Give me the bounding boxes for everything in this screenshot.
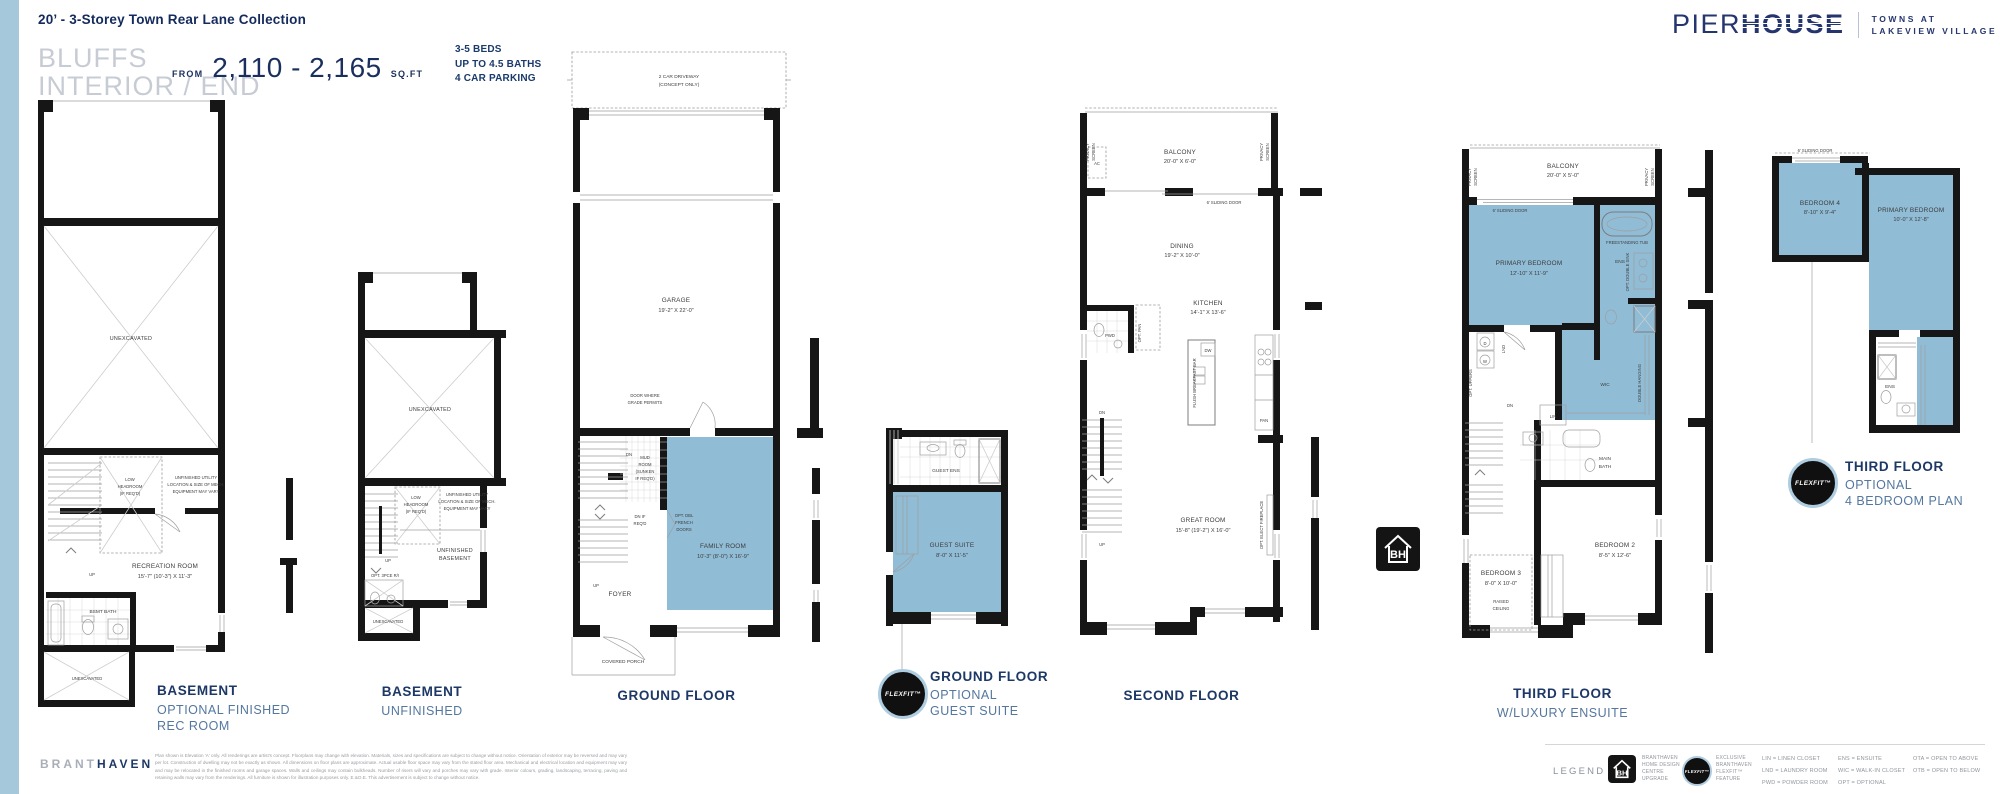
legend-line: BRANTHAVEN (1642, 755, 1680, 762)
label-lnd: LND (1501, 345, 1506, 353)
door-swing (1504, 332, 1525, 350)
label-privacy-screen: PRIVACY (1259, 143, 1264, 161)
left-accent-bar (0, 0, 19, 794)
caption-basement-optional: BASEMENT OPTIONAL FINISHED REC ROOM (157, 683, 290, 734)
bh-upgrade-badge: BH (1376, 527, 1420, 571)
label-utility: UNFINISHED UTILITY (175, 475, 218, 480)
label-french-doors: FRENCH (675, 520, 692, 525)
label-privacy-screen: SCREEN (1650, 168, 1655, 185)
caption-line: OPTIONAL FINISHED (157, 702, 290, 718)
stairs (578, 442, 628, 562)
sqft-block: FROM 2,110 - 2,165 SQ.FT (172, 52, 423, 84)
label-primary-bedroom-dims: 12'-10" X 11'-9" (1510, 271, 1548, 277)
label-dw: DW (1205, 348, 1212, 353)
legend-line: HOME DESIGN (1642, 762, 1680, 769)
caption-basement-unfinished: BASEMENT UNFINISHED (352, 684, 492, 719)
logo-stripe (1741, 18, 1845, 19)
label-unexcavated-lower: UNEXCAVATED (72, 676, 102, 681)
label-unexcavated-upper: UNEXCAVATED (110, 336, 153, 342)
label-balcony-dims: 20'-0" X 5'-0" (1547, 173, 1579, 179)
party-wall-fragments (1688, 150, 1713, 653)
label-sliding-door: 6' SLIDING DOOR (1493, 208, 1528, 213)
floorplan-ground: 2 CAR DRIVEWAY (CONCEPT ONLY) GARAGE 19'… (565, 40, 845, 685)
label-balcony: BALCONY (1547, 163, 1579, 170)
label-ens: ENS (1615, 259, 1625, 265)
pierhouse-logo: PIER HOUSE TOWNS AT LAKEVIEW VILLAGE (1672, 9, 1997, 40)
label-bedroom2: BEDROOM 2 (1595, 542, 1635, 549)
caption-third: THIRD FLOOR W/LUXURY ENSUITE (1460, 686, 1665, 721)
label-bedroom4: BEDROOM 4 (1800, 200, 1840, 207)
caption-line: 4 BEDROOM PLAN (1845, 493, 1963, 509)
label-up: UP (1099, 542, 1105, 547)
label-ens: ENS (1885, 384, 1895, 390)
branthaven-logo: BRANTHAVEN (40, 757, 153, 771)
label-pan: PAN (1260, 418, 1268, 423)
legend-line: CENTRE (1642, 769, 1680, 776)
label-balcony: BALCONY (1164, 149, 1196, 156)
legend-bh-icon: BH (1608, 755, 1636, 783)
label-dining: DINING (1170, 243, 1194, 250)
label-primary-bedroom-dims: 10'-0" X 12'-8" (1893, 217, 1928, 223)
label-garage-dims: 19'-2" X 22'-0" (658, 308, 693, 314)
label-driveway: 2 CAR DRIVEWAY (659, 74, 700, 80)
branthaven-logo-part2: HAVEN (97, 757, 153, 771)
range-counter (1255, 335, 1273, 430)
label-opt-pan: OPT. PAN (1137, 324, 1142, 343)
caption-line: THIRD FLOOR (1460, 686, 1665, 702)
label-bedroom2-dims: 8'-5" X 12'-6" (1599, 553, 1631, 559)
label-rec-room-dims: 15'-7" (10'-3") X 11'-3" (138, 574, 192, 580)
label-main-bath: MAIN (1599, 456, 1612, 462)
legend-line: BRANTHAVEN (1716, 762, 1752, 769)
legend-line: FEATURE (1716, 776, 1752, 783)
label-raised-ceiling: CEILING (1493, 606, 1510, 611)
wic-fill (1917, 337, 1953, 432)
label-up: UP (385, 558, 391, 563)
label-door-grade: DOOR WHERE (630, 393, 660, 398)
label-unfinished: UNFINISHED (437, 548, 473, 554)
legend-abbr: WIC = WALK-IN CLOSET (1838, 765, 1905, 777)
caption-ground: GROUND FLOOR (573, 688, 780, 704)
label-utility: UNFINISHED UTILITY (446, 492, 489, 497)
ensuite-fixtures (900, 437, 1001, 485)
label-bedroom3-dims: 8'-0" X 10'-0" (1485, 581, 1517, 587)
label-utility: LOCATION & SIZE OF MECH. (438, 499, 495, 504)
porch-lines (572, 637, 675, 675)
stairs (1465, 423, 1503, 513)
caption-line: GROUND FLOOR (573, 688, 780, 704)
logo-divider (1858, 12, 1859, 38)
label-breakfast-bar: FLUSH BREAKFAST BAR (1192, 358, 1197, 407)
floorplan-guest-suite: GUEST ENS GUEST SUITE 8'-0" X 11'-5" (876, 420, 1016, 675)
spec-baths: UP TO 4.5 BATHS (455, 58, 541, 73)
walls (1080, 113, 1283, 635)
label-garage: GARAGE (662, 297, 691, 304)
party-wall-fragments (1300, 188, 1322, 630)
label-low-headroom: LOW (411, 495, 421, 500)
label-privacy-screen: PRIVACY (1644, 168, 1649, 186)
label-foyer: FOYER (608, 591, 631, 598)
legend-abbr: OTA = OPEN TO ABOVE (1913, 753, 1980, 765)
label-double-hanging: DOUBLE HANGING (1637, 364, 1642, 402)
legend-abbr: OPT = OPTIONAL (1838, 777, 1905, 789)
label-wic: WIC (1600, 382, 1610, 388)
sqft-range: 2,110 - 2,165 (212, 52, 381, 84)
logo-stripe (1741, 23, 1845, 24)
legend-flexfit-text: EXCLUSIVE BRANTHAVEN FLEXFIT™ FEATURE (1716, 755, 1752, 783)
bathroom-fixtures (46, 598, 130, 645)
driveway-zone (567, 52, 791, 108)
label-washer: W (1483, 359, 1487, 364)
spec-parking: 4 CAR PARKING (455, 72, 541, 87)
label-basement: BASEMENT (439, 556, 471, 562)
party-wall-fragments (280, 478, 297, 613)
low-headroom-zone (100, 457, 162, 553)
walls (358, 272, 506, 641)
label-dn: DN (1099, 410, 1105, 415)
caption-line: BASEMENT (157, 683, 290, 699)
logo-wordmark: PIER HOUSE (1672, 9, 1845, 40)
label-utility: LOCATION & SIZE OF MECH. (167, 482, 224, 487)
label-opt-uppers: OPT. UPPERS (1468, 369, 1473, 397)
caption-third-4bed: THIRD FLOOR OPTIONAL 4 BEDROOM PLAN (1845, 459, 1963, 509)
spec-list: 3-5 BEDS UP TO 4.5 BATHS 4 CAR PARKING (455, 43, 541, 87)
label-family-room: FAMILY ROOM (700, 543, 746, 550)
caption-line: REC ROOM (157, 718, 290, 734)
label-privacy-screen: PRIVACY (1467, 168, 1472, 186)
label-low-headroom: HEADROOM (404, 502, 429, 507)
floorplan-second: PRIVACY SCREEN PRIVACY SCREEN AC BALCONY… (1070, 90, 1340, 640)
label-dn-if-reqd: REQ'D (634, 521, 647, 526)
label-guest-ens: GUEST ENS (932, 468, 960, 474)
label-bedroom3: BEDROOM 3 (1481, 570, 1521, 577)
label-mud-room: MUD (640, 455, 650, 460)
flexfit-badge: FLEXFIT™ (1788, 458, 1838, 508)
label-dn: DN (1507, 403, 1513, 408)
flexfit-badge-label: FLEXFIT™ (885, 691, 921, 698)
powder-room-fixtures (1087, 311, 1128, 353)
legend-abbr: ENS = ENSUITE (1838, 753, 1905, 765)
label-rough-in: OPT. 3PCE R/I (371, 573, 399, 578)
bedroom4-fill (1779, 163, 1862, 255)
label-dn: DN (626, 452, 632, 457)
bh-badge-label: BH (1390, 549, 1406, 561)
label-freestanding-tub: FREESTANDING TUB (1606, 240, 1648, 245)
disclaimer-text: Plan shown is Elevation 'A' only. All re… (155, 752, 627, 782)
floorplan-basement-unfinished: UNEXCAVATED LOW HEADROOM (IF REQ'D) UNFI… (275, 268, 560, 652)
legend-divider (1545, 744, 1985, 745)
tagline-line2: LAKEVIEW VILLAGE (1872, 25, 1998, 37)
label-lin: LIN (1550, 414, 1557, 419)
label-main-bath: BATH (1599, 464, 1612, 470)
label-french-doors: OPT. DBL (675, 513, 694, 518)
from-label: FROM (172, 69, 203, 79)
caption-line: OPTIONAL (930, 687, 1048, 703)
floorplan-third-4bed: 6' SLIDING DOOR BEDROOM 4 8'-10" X 9'-4"… (1765, 145, 1975, 445)
label-low-headroom: HEADROOM (118, 484, 143, 489)
label-kitchen-dims: 14'-1" X 13'-6" (1190, 310, 1225, 316)
branthaven-logo-part1: BRANT (40, 757, 97, 771)
label-family-room-dims: 10'-3" (8'-0") X 16'-9" (697, 554, 749, 560)
label-rec-room: RECREATION ROOM (132, 563, 198, 570)
logo-house: HOUSE (1741, 9, 1845, 40)
door-swing (155, 514, 180, 532)
legend-abbr: OTB = OPEN TO BELOW (1913, 765, 1980, 777)
flexfit-badge-label: FLEXFIT™ (1795, 480, 1831, 487)
bed3-closet (1541, 555, 1563, 617)
label-great-room-dims: 15'-8" (19'-2") X 16'-0" (1176, 528, 1231, 534)
legend-abbr-col3: OTA = OPEN TO ABOVE OTB = OPEN TO BELOW (1913, 753, 1980, 777)
legend-abbr-col2: ENS = ENSUITE WIC = WALK-IN CLOSET OPT =… (1838, 753, 1905, 789)
label-driveway: (CONCEPT ONLY) (659, 82, 700, 88)
label-pwd: PWD (1105, 333, 1115, 338)
label-privacy-screen: SCREEN (1091, 143, 1096, 160)
floorplan-basement-optional: UNEXCAVATED LOW HEADROOM (IF REQ'D) UNFI… (30, 95, 260, 710)
legend-abbr-col1: LIN = LINEN CLOSET LND = LAUNDRY ROOM PW… (1762, 753, 1828, 789)
primary-bedroom-fill (1869, 175, 1953, 330)
balcony-rail (1470, 145, 1660, 148)
caption-line: GROUND FLOOR (930, 669, 1048, 685)
caption-line: SECOND FLOOR (1078, 688, 1285, 704)
caption-line: UNFINISHED (352, 703, 492, 719)
label-great-room: GREAT ROOM (1180, 517, 1225, 524)
label-mud-room: ROOM (638, 462, 652, 467)
label-primary-bedroom: PRIMARY BEDROOM (1878, 207, 1945, 214)
legend-bh-text: BRANTHAVEN HOME DESIGN CENTRE UPGRADE (1642, 755, 1680, 783)
label-dryer: D (1483, 341, 1486, 346)
tagline-line1: TOWNS AT (1872, 13, 1998, 25)
label-up: UP (593, 583, 599, 588)
logo-house-text: HOUSE (1741, 9, 1845, 39)
logo-pier: PIER (1672, 9, 1741, 40)
label-unexcavated-lower: UNEXCAVATED (373, 619, 403, 624)
party-wall-fragments (797, 338, 823, 642)
label-low-headroom: (IF REQ'D) (120, 491, 141, 496)
label-sliding-door: 6' SLIDING DOOR (1207, 200, 1242, 205)
label-utility: EQUIPMENT MAY VARY (444, 506, 491, 511)
label-up: UP (89, 572, 95, 577)
floorplan-sheet: 20’ - 3-Storey Town Rear Lane Collection… (0, 0, 2000, 794)
legend-line: EXCLUSIVE (1716, 755, 1752, 762)
label-unexcavated-upper: UNEXCAVATED (409, 407, 452, 413)
label-sliding-door: 6' SLIDING DOOR (1798, 148, 1833, 153)
floorplan-third: PRIVACY SCREEN PRIVACY SCREEN BALCONY 20… (1455, 135, 1730, 690)
label-mud-room: (SUNKEN (636, 469, 655, 474)
label-bedroom4-dims: 8'-10" X 9'-4" (1804, 210, 1836, 216)
main-bath-fixtures (1520, 430, 1600, 480)
label-bsmt-bath: BSMT BATH (89, 609, 117, 615)
logo-stripe (1741, 27, 1845, 28)
caption-guest-suite: GROUND FLOOR OPTIONAL GUEST SUITE (930, 669, 1048, 719)
flexfit-badge-label: FLEXFIT™ (1685, 769, 1709, 774)
caption-second: SECOND FLOOR (1078, 688, 1285, 704)
label-balcony-dims: 20'-0" X 6'-0" (1164, 159, 1196, 165)
label-low-headroom: (IF REQ'D) (406, 509, 427, 514)
sqft-unit: SQ.FT (391, 69, 424, 79)
label-privacy-screen: PRIVACY (1085, 143, 1090, 161)
collection-title: 20’ - 3-Storey Town Rear Lane Collection (38, 12, 306, 27)
balcony-rail (1085, 108, 1278, 112)
legend-abbr: PWD = POWDER ROOM (1762, 777, 1828, 789)
label-covered-porch: COVERED PORCH (602, 659, 645, 665)
ensuite-fixtures (1878, 355, 1915, 416)
caption-line: BASEMENT (352, 684, 492, 700)
caption-line: GUEST SUITE (930, 703, 1048, 719)
bh-badge-label: BH (1616, 768, 1627, 777)
walls (38, 100, 225, 707)
label-guest-suite-dims: 8'-0" X 11'-5" (936, 553, 968, 559)
bh-house-icon: BH (1608, 755, 1636, 783)
label-french-doors: DOORS (676, 527, 692, 532)
guest-suite-fill (893, 492, 1001, 612)
caption-line: THIRD FLOOR (1845, 459, 1963, 475)
label-primary-bedroom: PRIMARY BEDROOM (1496, 260, 1563, 267)
logo-tagline: TOWNS AT LAKEVIEW VILLAGE (1872, 13, 1998, 37)
flexfit-badge: FLEXFIT™ (878, 669, 928, 719)
spec-beds: 3-5 BEDS (455, 43, 541, 58)
label-guest-suite: GUEST SUITE (930, 542, 975, 549)
bh-house-icon: BH (1376, 527, 1420, 571)
legend-title: LEGEND (1553, 766, 1605, 777)
legend-line: FLEXFIT™ (1716, 769, 1752, 776)
label-opt-double-sink: OPT. DOUBLE SINK (1625, 252, 1630, 291)
raised-ceiling-zone (1470, 555, 1532, 630)
label-utility: EQUIPMENT MAY VARY (173, 489, 220, 494)
label-low-headroom: LOW (125, 477, 135, 482)
label-fireplace: OPT. ELECT FIREPLACE (1259, 501, 1264, 550)
caption-line: OPTIONAL (1845, 477, 1963, 493)
label-mud-room: IF REQ'D) (635, 476, 655, 481)
label-ac: AC (1094, 161, 1100, 166)
legend-line: UPGRADE (1642, 776, 1680, 783)
legend-flexfit-icon: FLEXFIT™ (1682, 756, 1712, 786)
stairs (365, 494, 398, 573)
label-privacy-screen: SCREEN (1473, 168, 1478, 185)
label-door-grade: GRADE PERMITS (628, 400, 663, 405)
legend-abbr: LIN = LINEN CLOSET (1762, 753, 1828, 765)
label-kitchen: KITCHEN (1193, 300, 1223, 307)
fireplace (1267, 495, 1273, 555)
label-privacy-screen: SCREEN (1265, 143, 1270, 160)
label-dining-dims: 19'-2" X 10'-0" (1164, 253, 1199, 259)
label-raised-ceiling: RAISED (1493, 599, 1509, 604)
caption-line: W/LUXURY ENSUITE (1460, 705, 1665, 721)
label-dn-if-reqd: DN IF (635, 514, 646, 519)
stairs (1082, 418, 1122, 532)
legend-abbr: LND = LAUNDRY ROOM (1762, 765, 1828, 777)
